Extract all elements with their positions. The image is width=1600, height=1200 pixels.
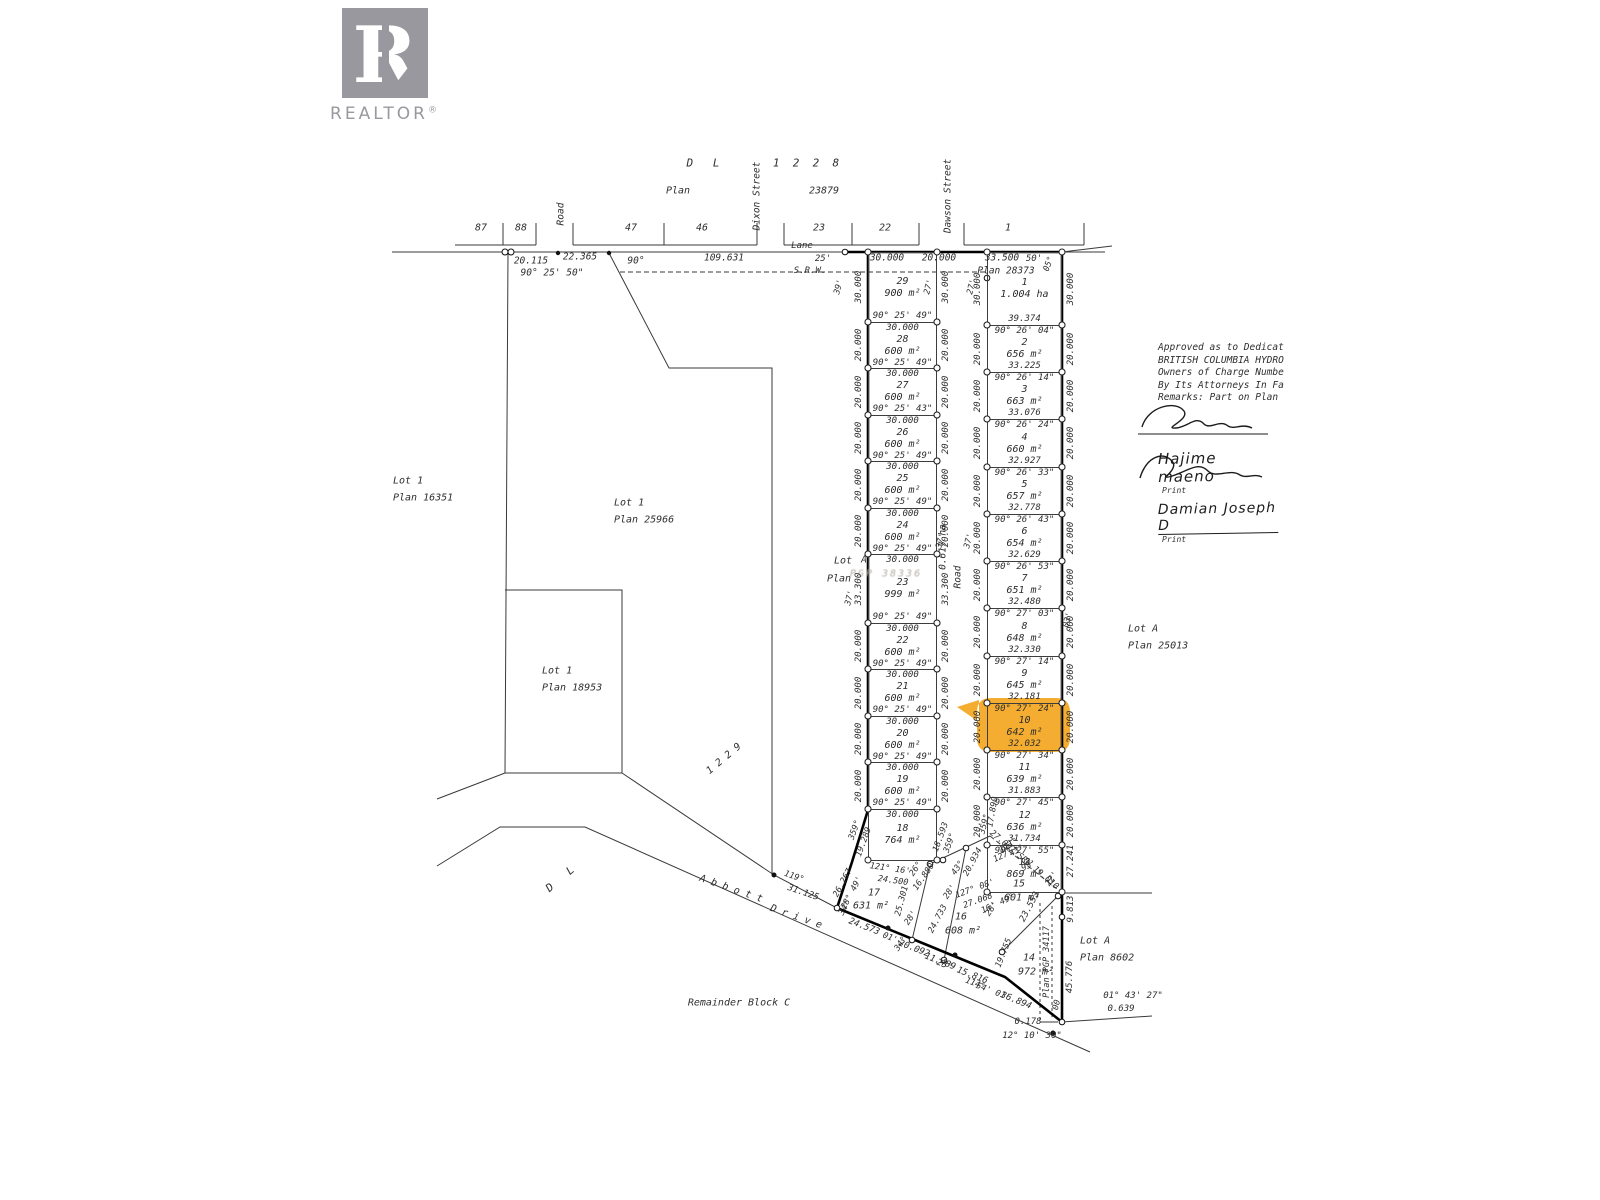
map-label: 15 [1013,879,1025,890]
print-caption-2: Print [1162,535,1318,544]
lot-corner-post [865,806,872,813]
lot-cell-22: 30.00022 600 m²90° 25' 49" [868,623,937,670]
lot-cell-8: 90° 27' 03"8 648 m²32.330 [987,608,1062,657]
lot-side-dimension: 20.000 [973,805,983,838]
lot-number-and-area: 2 656 m² [1006,337,1042,361]
map-label: 46 [696,223,708,234]
map-label: Dawson Street [943,159,954,233]
lot-frontage-label: 32.480 [1008,597,1041,608]
lot-bearing-label: 90° 27' 03" [995,609,1055,620]
lot-bearing-label: 90° 26' 24" [995,420,1055,431]
lot-bearing-label: 90° 25' 43" [873,404,933,415]
lot-corner-post [984,464,991,471]
lot-side-dimension: 20.000 [941,515,951,548]
map-label: Road [556,203,567,226]
lot-side-dimension: 20.000 [941,329,951,362]
lot-side-dimension: 20.000 [941,676,951,709]
lot-corner-post [865,857,872,864]
lot-bearing-label [900,849,905,860]
map-label: Plan 18953 [542,683,602,694]
lot-corner-post [1059,700,1066,707]
lot-corner-post [934,666,941,673]
map-label: Lot [834,556,852,567]
map-label: Plan 16351 [393,493,453,504]
lot-number-and-area: 4 660 m² [1006,432,1042,456]
lot-corner-post [865,412,872,419]
lot-side-dimension: 20.000 [973,616,983,649]
map-label: Lot 1 [393,476,423,487]
realtor-logo: R REALTOR® [330,8,440,124]
lot-side-dimension: 20.000 [941,630,951,663]
lot-number-and-area: 12 636 m² [1006,810,1042,834]
lot-frontage-label: 32.629 [1008,550,1041,561]
lot-corner-post [934,319,941,326]
map-label: 22.365 [563,252,597,263]
lot-side-dimension: 20.000 [941,769,951,802]
lot-side-dimension: 20.000 [973,379,983,412]
lot-bearing-label: 90° 25' 49" [873,497,933,508]
lot-bearing-label: 90° 25' 49" [873,311,933,322]
lot-bearing-label: 90° 25' 49" [873,612,933,623]
lot-frontage-label: 30.000 [886,717,919,728]
lot-number-and-area: 8 648 m² [1006,621,1042,645]
lot-side-dimension: 20.000 [854,422,864,455]
lot-bearing-label: 90° 26' 14" [995,373,1055,384]
map-label: Remainder Block C [688,998,790,1009]
lot-corner-post [1059,653,1066,660]
lot-frontage-label: 32.330 [1008,645,1041,656]
map-label: 109.631 [704,253,744,264]
lot-number-and-area: 18 764 m² [884,823,920,847]
lot-frontage-label: 39.374 [1008,314,1041,325]
lot-cell-5: 90° 26' 33"5 657 m²32.778 [987,467,1062,515]
lot-frontage-label: 30.000 [886,323,919,334]
lot-corner-post [984,889,991,896]
map-label: 27.241 [1066,845,1076,878]
lot-frontage-label: 30.000 [886,555,919,566]
lot-corner-post [865,759,872,766]
lot-corner-post [865,319,872,326]
lot-frontage-label: 30.000 [886,369,919,380]
map-label: 608 m² [945,926,981,937]
map-label: 9.813 [1066,895,1076,922]
lot-bearing-label: 90° 25' 49" [873,705,933,716]
lot-frontage-label: 30.000 [886,509,919,520]
map-label: Plan [666,186,690,197]
lot-corner-post [984,558,991,565]
lot-frontage-label: 30.000 [886,810,919,821]
lot-side-dimension: 30.000 [941,271,951,304]
lot-side-dimension: 20.000 [1066,521,1076,554]
lot-number-and-area: 20 600 m² [884,728,920,752]
lot-side-dimension: 20.000 [854,515,864,548]
lot-bearing-label: 90° 27' 34" [995,751,1055,762]
lot-corner-post [934,412,941,419]
lot-bearing-label: 90° 26' 04" [995,326,1055,337]
lot-bearing-label: 90° 26' 53" [995,562,1055,573]
map-label: Plan PGP 34117 [1042,926,1052,998]
lot-side-dimension: 20.000 [1066,427,1076,460]
lot-corner-post [1059,249,1066,256]
map-label: 33.500 [985,253,1019,264]
map-label: 01° 43' 27" [1103,991,1163,1001]
lot-number-and-area: 29 900 m² [884,276,920,300]
approval-text-line: BRITISH COLUMBIA HYDRO [1158,355,1318,368]
lot-corner-post [1059,605,1066,612]
realtor-logo-mark: R [342,8,428,98]
map-label: D L [686,157,719,170]
lot-cell-6: 90° 26' 43"6 654 m²32.629 [987,514,1062,562]
lot-side-dimension: 20.000 [854,723,864,756]
lot-side-dimension: 20.000 [973,710,983,743]
lot-corner-post [865,620,872,627]
plat-scan-page: { "branding": {"logo_initial":"R","logo_… [0,0,1600,1200]
lot-corner-post [1059,558,1066,565]
lot-side-dimension: 20.000 [941,375,951,408]
map-label: 14 [1023,953,1035,964]
lot-corner-post [984,511,991,518]
lot-bearing-label: 90° 27' 24" [995,704,1055,715]
lot-cell-11: 90° 27' 34"11 639 m²31.883 [987,750,1062,798]
lot-corner-post [1059,842,1066,849]
lot-cell-3: 90° 26' 14"3 663 m²33.076 [987,372,1062,420]
lot-side-dimension: 20.000 [973,474,983,507]
map-label: 23 [813,223,825,234]
lot-bearing-label: 90° 25' 49" [873,798,933,809]
map-label: 47 [625,223,637,234]
map-label: 631 m² [853,901,889,912]
lot-frontage-label: 32.032 [1008,739,1041,750]
map-label: 30.000 [870,253,904,264]
map-label: 88 [515,223,527,234]
lot-number-and-area: 22 600 m² [884,635,920,659]
lot-side-dimension: 33.300 [854,572,864,605]
lot-side-dimension: 33.300 [941,572,951,605]
lot-number-and-area: 27 600 m² [884,380,920,404]
lot-corner-post [984,653,991,660]
lot-frontage-label: 30.000 [886,670,919,681]
map-label: 17 [868,888,880,899]
lot-cell-4: 90° 26' 24"4 660 m²32.927 [987,419,1062,468]
lot-corner-post [984,322,991,329]
lot-side-dimension: 20.000 [1066,474,1076,507]
map-label: 87 [475,223,487,234]
lot-corner-post [934,620,941,627]
lot-side-dimension: 20.000 [1066,379,1076,412]
lot-cell-7: 90° 26' 53"7 651 m²32.480 [987,561,1062,609]
lot-side-dimension: 20.000 [973,427,983,460]
approval-text-lines: Approved as to DedicatBRITISH COLUMBIA H… [1158,342,1318,405]
lot-corner-post [1059,747,1066,754]
lot-corner-post [984,416,991,423]
lot-corner-post [1059,511,1066,518]
map-label: Road [953,566,964,589]
lot-number-and-area: 26 600 m² [884,427,920,451]
map-label: Plan 28373 [977,266,1034,277]
lot-bearing-label: 90° 26' 33" [995,468,1055,479]
lot-cell-24: 30.00024 600 m²90° 25' 49" [868,508,937,555]
lot-side-dimension: 20.000 [1066,710,1076,743]
lot-side-dimension: 20.000 [854,468,864,501]
lot-corner-post [865,365,872,372]
approval-text-line: By Its Attorneys In Fa [1158,380,1318,393]
lot-side-dimension: 20.000 [1066,757,1076,790]
lot-cell-2: 90° 26' 04"2 656 m²33.225 [987,325,1062,373]
lot-frontage-label: 33.076 [1008,408,1041,419]
map-label: 50' [1026,254,1042,264]
lot-frontage-label: 30.000 [886,462,919,473]
map-label: 972 m² [1018,967,1054,978]
lot-corner-post [934,551,941,558]
lot-corner-post [984,249,991,256]
map-label: 16 [955,912,967,923]
lot-frontage-label: 33.225 [1008,361,1041,372]
lot-corner-post [865,458,872,465]
approval-block: Approved as to DedicatBRITISH COLUMBIA H… [1158,342,1318,544]
map-label: 1 2 2 8 [773,157,839,170]
lot-side-dimension: 30.000 [1066,272,1076,305]
lot-corner-post [934,713,941,720]
approval-text-line: Remarks: Part on Plan [1158,392,1318,405]
approval-text-line: Owners of Charge Numbe [1158,367,1318,380]
lot-number-and-area: 1 1.004 ha [1000,277,1048,301]
survey-plan-linework [0,0,1600,1200]
map-label: 23879 [809,186,839,197]
map-label: 20.115 [514,256,548,267]
lot-corner-post [1059,464,1066,471]
lot-number-and-area: 23 999 m² [884,577,920,601]
lot-corner-post [984,605,991,612]
lot-number-and-area: 3 663 m² [1006,384,1042,408]
lot-number-and-area: 28 600 m² [884,334,920,358]
lot-corner-post [1059,416,1066,423]
map-label: Lot 1 [542,666,572,677]
map-label: 12° 10' 30" [1002,1031,1062,1041]
lot-cell-23: 30.00023 999 m²90° 25' 49" [868,554,937,624]
lot-cell-21: 30.00021 600 m²90° 25' 49" [868,669,937,717]
lot-cell-18: 30.00018 764 m² [868,809,937,861]
map-label: Plan [827,574,851,585]
lot-side-dimension: 30.000 [854,271,864,304]
approval-text-line: Approved as to Dedicat [1158,342,1318,355]
lot-cell-20: 30.00020 600 m²90° 25' 49" [868,716,937,763]
signatory-name-2: Damian Joseph D [1158,500,1279,535]
lot-corner-post [934,458,941,465]
lot-side-dimension: 20.000 [941,723,951,756]
lot-side-dimension: 20.000 [1066,568,1076,601]
lot-frontage-label: 30.000 [886,416,919,427]
lot-side-dimension: 20.000 [854,630,864,663]
lot-bearing-label: 90° 27' 45" [995,798,1055,809]
lot-corner-post [1059,322,1066,329]
map-label: 45.776 [1065,961,1075,994]
map-label: Lot 1 [614,498,644,509]
map-label: Plan 25966 [614,515,674,526]
lot-number-and-area: 6 654 m² [1006,526,1042,550]
map-label: 0.639 [1107,1004,1134,1014]
lot-corner-post [934,806,941,813]
lot-corner-post [984,747,991,754]
map-label: 22 [879,223,891,234]
map-label: Lot A [1128,624,1158,635]
print-caption-1: Print [1162,486,1318,495]
lot-corner-post [865,249,872,256]
lot-corner-post [984,369,991,376]
lot-side-dimension: 20.000 [854,769,864,802]
lot-number-and-area: 7 651 m² [1006,573,1042,597]
lot-side-dimension: 20.000 [941,468,951,501]
lot-side-dimension: 20.000 [973,757,983,790]
lot-side-dimension: 20.000 [854,329,864,362]
lot-cell-19: 30.00019 600 m²90° 25' 49" [868,762,937,810]
lot-cell-10: 90° 27' 24"10 642 m²32.032 [987,703,1062,751]
lot-corner-post [934,505,941,512]
map-label: 90° 25' 50" [521,268,584,279]
lot-side-dimension: 30.000 [973,272,983,305]
lot-number-and-area: 9 645 m² [1006,668,1042,692]
lot-side-dimension: 20.000 [1066,663,1076,696]
lot-corner-post [865,505,872,512]
lot-frontage-label: 30.000 [886,763,919,774]
lot-number-and-area: 5 657 m² [1006,479,1042,503]
lot-number-and-area: 25 600 m² [884,473,920,497]
lot-frontage-label: 30.000 [886,624,919,635]
lot-corner-post [984,794,991,801]
lot-corner-post [984,700,991,707]
lot-corner-post [865,713,872,720]
map-label: Dixon Street [752,162,763,231]
map-label: Plan 8602 [1080,953,1134,964]
lot-corner-post [934,857,941,864]
signatory-name-1: Hajime maeno [1158,448,1279,486]
lot-side-dimension: 20.000 [854,375,864,408]
lot-corner-post [1059,794,1066,801]
lot-side-dimension: 20.000 [941,422,951,455]
lot-corner-post [934,759,941,766]
map-label: 25' [815,254,831,264]
lot-side-dimension: 20.000 [1066,805,1076,838]
lot-corner-post [934,249,941,256]
lot-cell-27: 30.00027 600 m²90° 25' 43" [868,368,937,416]
map-label: 90° [627,256,644,267]
lot-cell-28: 30.00028 600 m²90° 25' 49" [868,322,937,369]
lot-frontage-label: 32.181 [1008,692,1041,703]
lot-side-dimension: 20.000 [973,568,983,601]
map-label: Plan 25013 [1128,641,1188,652]
lot-number-and-area: 10 642 m² [1006,715,1042,739]
lot-cell-9: 90° 27' 14"9 645 m²32.181 [987,656,1062,704]
map-label: Lane [791,241,813,251]
realtor-logo-word: REALTOR® [330,104,440,124]
lot-number-and-area: 21 600 m² [884,681,920,705]
lot-bearing-label: 90° 26' 43" [995,515,1055,526]
lot-corner-post [1059,369,1066,376]
map-label: 1 [1005,223,1011,234]
lot-corner-post [984,842,991,849]
lot-side-dimension: 20.000 [973,332,983,365]
lot-side-dimension: 20.000 [1066,616,1076,649]
lot-frontage-label: 32.927 [1008,456,1041,467]
map-label: S.R.W. [794,266,827,276]
lot-number-and-area: 11 639 m² [1006,762,1042,786]
lot-side-dimension: 20.000 [973,521,983,554]
lot-corner-post [1059,889,1066,896]
lot-cell-25: 30.00025 600 m²90° 25' 49" [868,461,937,509]
lot-side-dimension: 20.000 [854,676,864,709]
lot-bearing-label: 90° 27' 14" [995,657,1055,668]
map-label: 0.178 [1014,1017,1041,1027]
lot-corner-post [865,551,872,558]
map-label: Lot A [1080,936,1110,947]
lot-side-dimension: 20.000 [1066,332,1076,365]
lot-side-dimension: 20.000 [973,663,983,696]
lot-frontage-label: 32.778 [1008,503,1041,514]
lot-frontage-label: 31.883 [1008,786,1041,797]
lot-corner-post [865,666,872,673]
lot-number-and-area: 24 600 m² [884,520,920,544]
lot-cell-26: 30.00026 600 m²90° 25' 49" [868,415,937,462]
lot-corner-post [934,365,941,372]
lot-number-and-area: 19 600 m² [884,774,920,798]
